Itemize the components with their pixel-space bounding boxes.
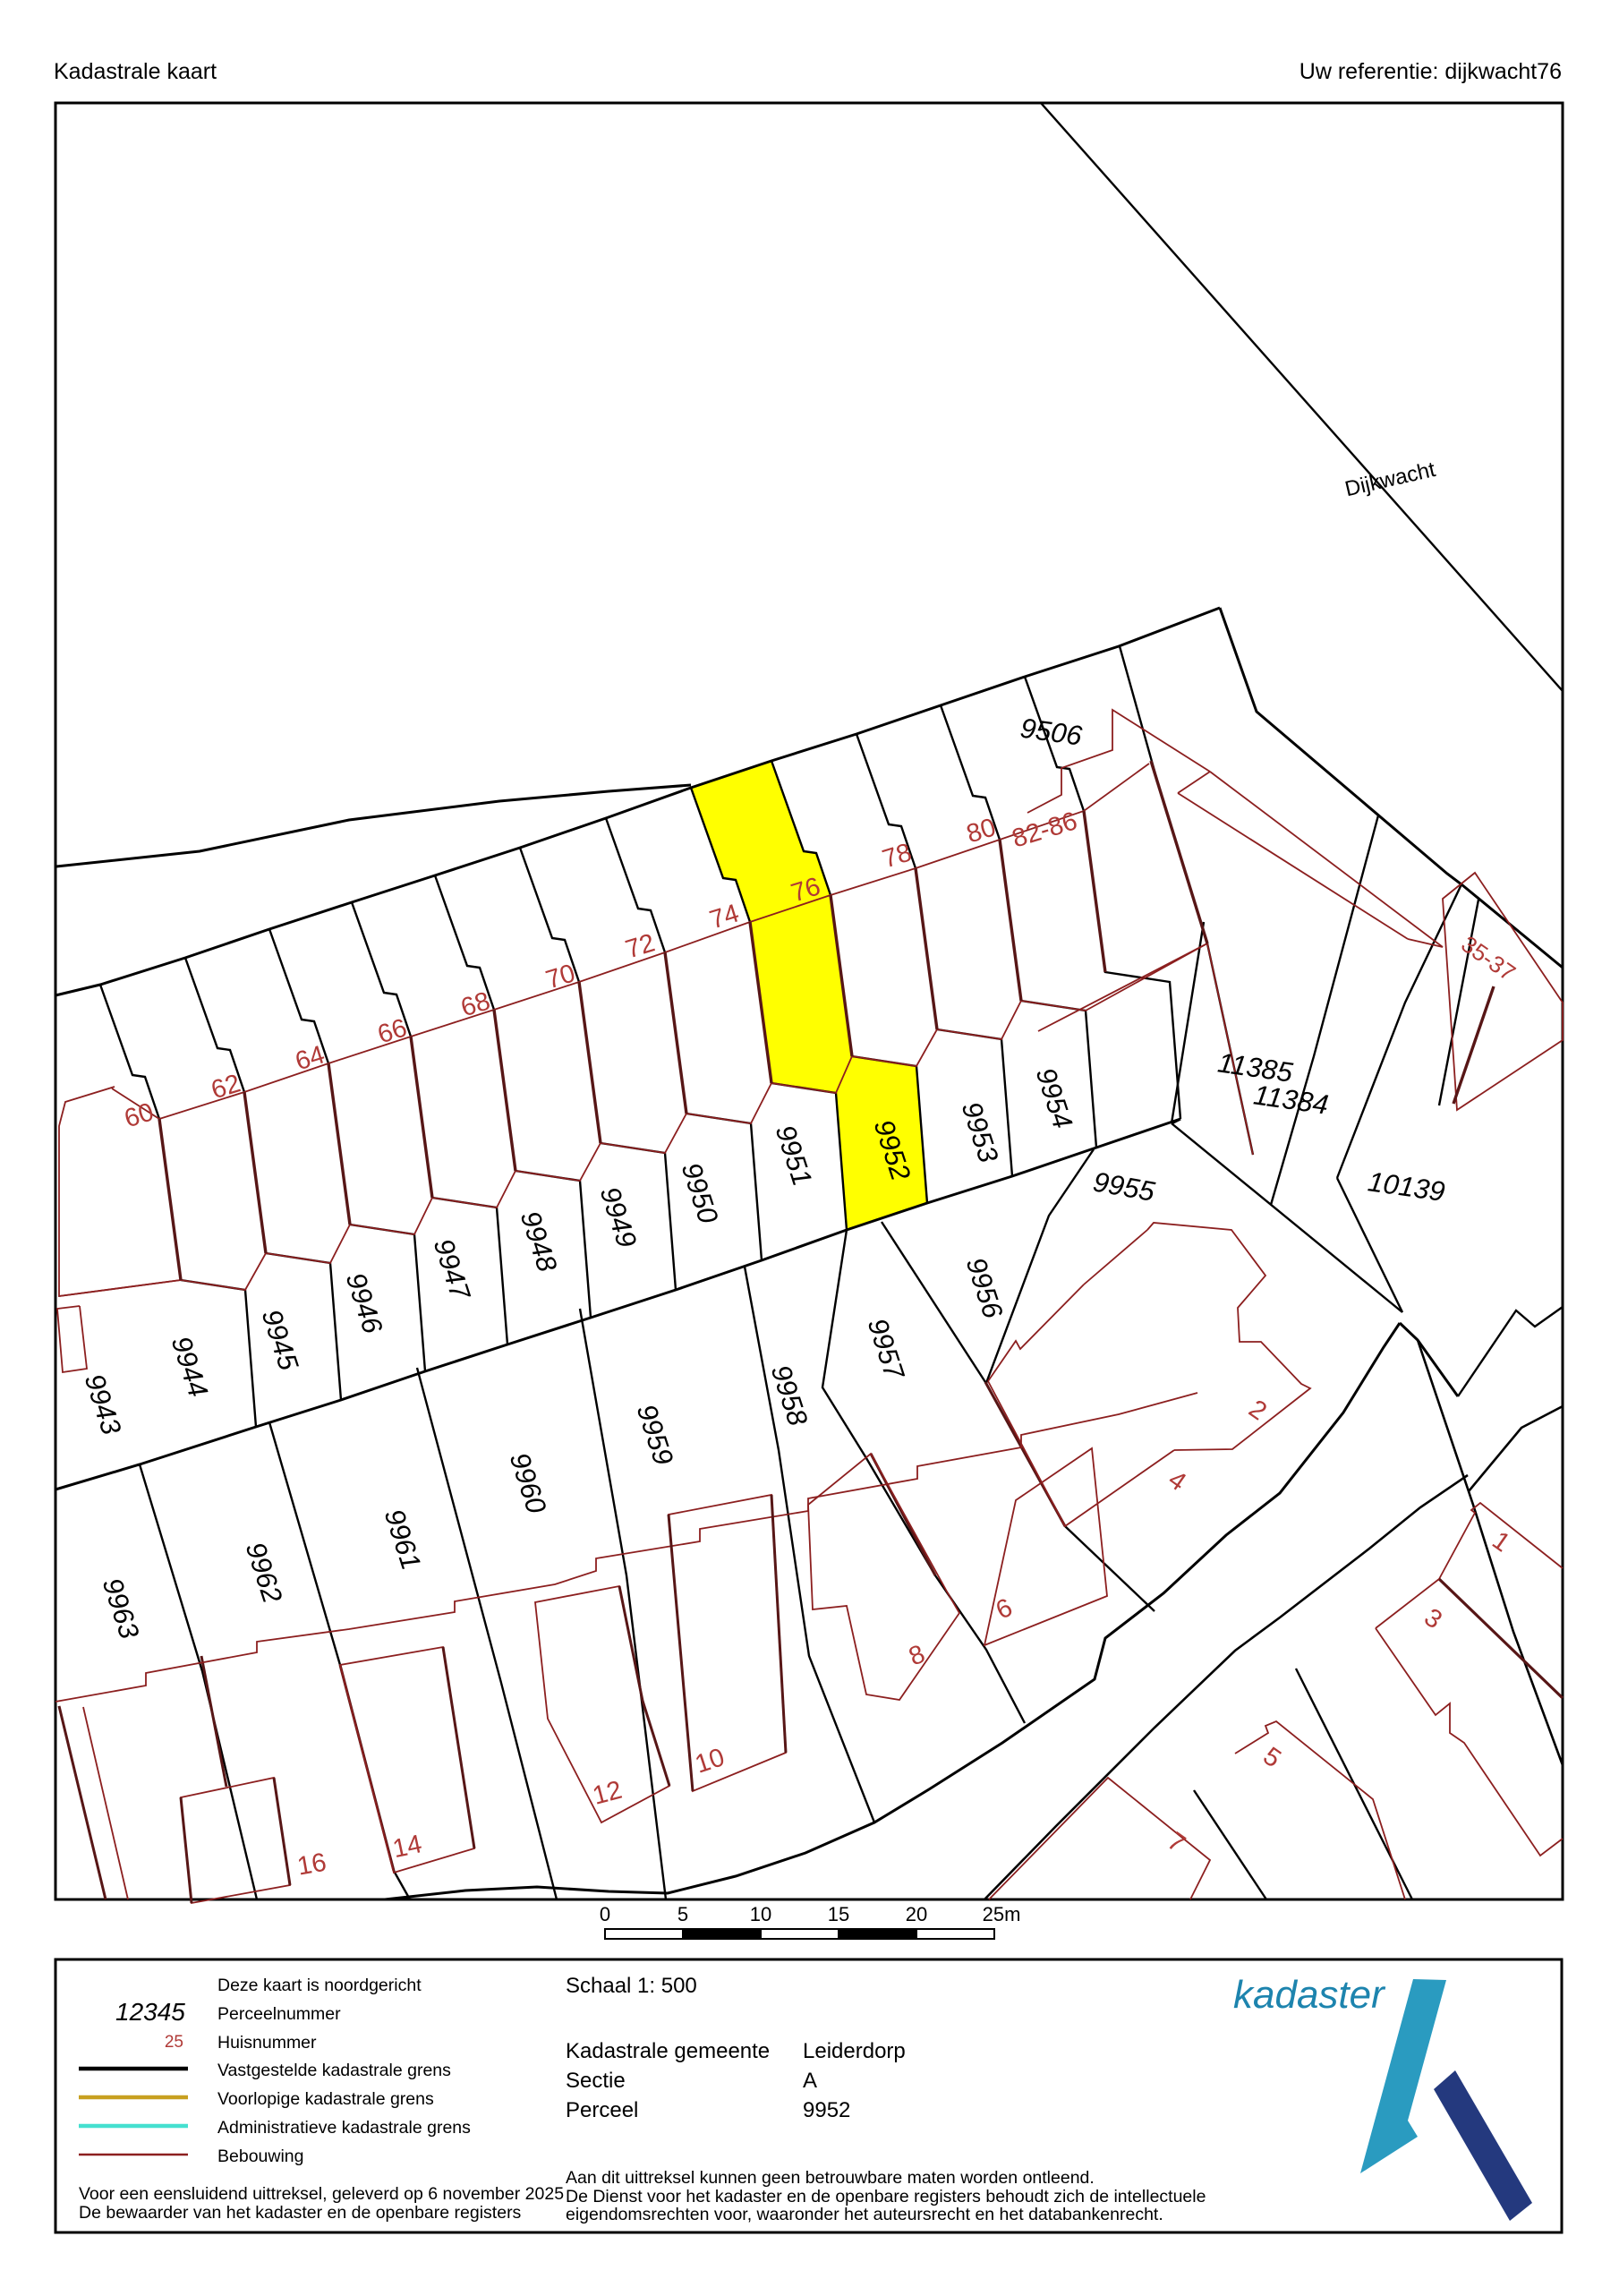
svg-text:15: 15 bbox=[828, 1903, 849, 1925]
svg-text:25m: 25m bbox=[983, 1903, 1021, 1925]
svg-text:Leiderdorp: Leiderdorp bbox=[803, 2039, 906, 2063]
svg-text:25: 25 bbox=[165, 2033, 183, 2052]
svg-text:De bewaarder van het kadaster: De bewaarder van het kadaster en de open… bbox=[79, 2203, 522, 2223]
svg-text:Bebouwing: Bebouwing bbox=[217, 2147, 304, 2166]
svg-text:14: 14 bbox=[390, 1830, 424, 1864]
svg-text:16: 16 bbox=[295, 1848, 328, 1882]
svg-text:20: 20 bbox=[906, 1903, 927, 1925]
svg-text:eigendomsrechten voor, waarond: eigendomsrechten voor, waaronder het aut… bbox=[566, 2205, 1163, 2224]
svg-text:Administratieve kadastrale gre: Administratieve kadastrale grens bbox=[217, 2118, 471, 2138]
svg-text:Schaal 1: 500: Schaal 1: 500 bbox=[566, 1974, 697, 1998]
svg-text:Uw referentie: dijkwacht76: Uw referentie: dijkwacht76 bbox=[1299, 59, 1562, 84]
svg-text:Kadastrale gemeente: Kadastrale gemeente bbox=[566, 2039, 770, 2063]
svg-text:9952: 9952 bbox=[803, 2098, 850, 2122]
svg-text:kadaster: kadaster bbox=[1233, 1973, 1386, 2017]
svg-text:Huisnummer: Huisnummer bbox=[217, 2033, 317, 2053]
svg-text:10: 10 bbox=[750, 1903, 771, 1925]
svg-text:Voorlopige kadastrale grens: Voorlopige kadastrale grens bbox=[217, 2089, 434, 2109]
svg-text:Kadastrale kaart: Kadastrale kaart bbox=[54, 59, 217, 84]
svg-text:Perceel: Perceel bbox=[566, 2098, 638, 2122]
svg-text:Sectie: Sectie bbox=[566, 2069, 626, 2093]
svg-text:De Dienst voor het kadaster en: De Dienst voor het kadaster en de openba… bbox=[566, 2187, 1206, 2206]
svg-text:5: 5 bbox=[677, 1903, 688, 1925]
svg-text:Perceelnummer: Perceelnummer bbox=[217, 2004, 341, 2024]
svg-text:Vastgestelde kadastrale grens: Vastgestelde kadastrale grens bbox=[217, 2061, 451, 2080]
svg-text:Voor een eensluidend uittrekse: Voor een eensluidend uittreksel, gelever… bbox=[79, 2184, 564, 2204]
svg-text:0: 0 bbox=[600, 1903, 610, 1925]
svg-text:Deze kaart is noordgericht: Deze kaart is noordgericht bbox=[217, 1976, 422, 1995]
svg-text:Aan dit uittreksel kunnen geen: Aan dit uittreksel kunnen geen betrouwba… bbox=[566, 2168, 1095, 2188]
svg-text:12345: 12345 bbox=[115, 1998, 185, 2026]
svg-text:A: A bbox=[803, 2069, 817, 2093]
